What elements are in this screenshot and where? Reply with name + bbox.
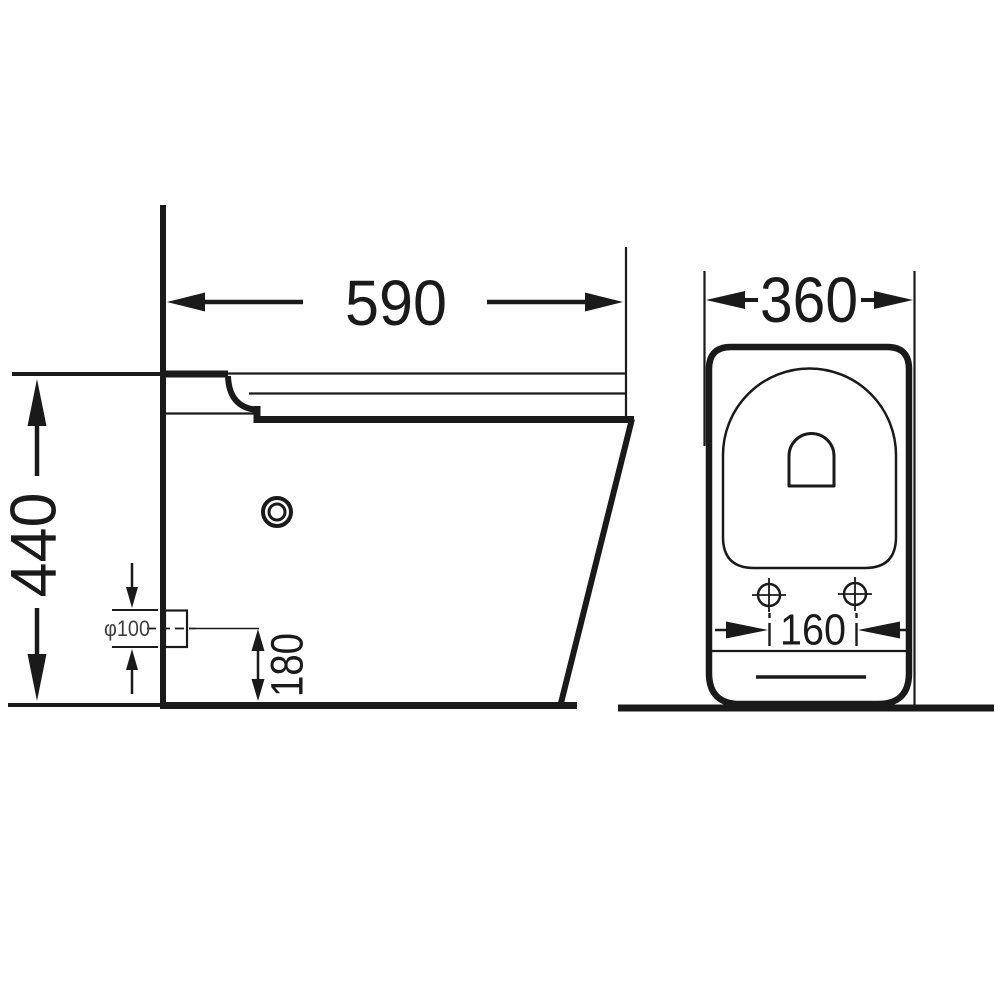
depth-arrowhead-left: [167, 293, 205, 312]
back-slant-line: [561, 419, 632, 703]
outlet-arrowhead-up: [126, 649, 138, 670]
width-arrowhead-right: [874, 291, 913, 309]
side-view: 590 440 φ100 180: [0, 205, 634, 706]
width-arrowhead-left: [706, 291, 745, 309]
depth-dimension-label: 590: [345, 267, 447, 339]
side-button-inner-circle: [269, 504, 285, 520]
height-arrowhead-up: [28, 379, 47, 426]
depth-arrowhead-right: [585, 293, 623, 312]
side-button-outer-circle: [263, 498, 291, 526]
bolt-spacing-arrowhead-left: [726, 622, 768, 639]
front-view: 160 360: [618, 264, 994, 708]
outlet-height-label: 180: [262, 633, 313, 697]
bolt-spacing-label: 160: [780, 606, 846, 655]
height-arrowhead-down: [28, 654, 47, 701]
toilet-technical-drawing: 590 440 φ100 180: [0, 0, 1000, 1000]
height-dimension-label: 440: [0, 493, 70, 598]
width-dimension-label: 360: [760, 264, 858, 336]
flush-outlet-arch: [789, 434, 834, 487]
seat-opening-outline: [723, 369, 896, 569]
outlet-arrowhead-down: [126, 587, 138, 608]
outlet-diameter-label: φ100: [104, 616, 150, 641]
seat-bottom-line: [257, 406, 634, 420]
drawing-svg: 590 440 φ100 180: [0, 0, 1000, 1000]
bolt-spacing-arrowhead-right: [858, 622, 900, 639]
